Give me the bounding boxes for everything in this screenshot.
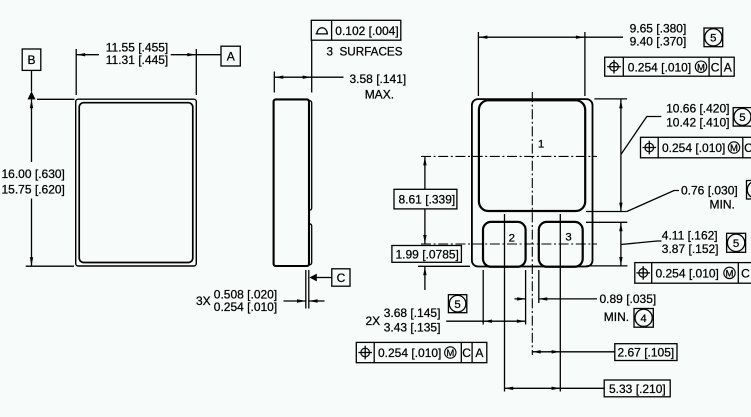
svg-text:5: 5 (710, 33, 716, 45)
svg-text:2.67 [.105]: 2.67 [.105] (618, 346, 675, 360)
svg-text:0.254 [.010]: 0.254 [.010] (656, 267, 719, 281)
svg-text:MIN.: MIN. (604, 310, 629, 324)
svg-text:5.33 [.210]: 5.33 [.210] (609, 382, 666, 396)
svg-text:MAX.: MAX. (365, 88, 394, 102)
svg-text:C: C (711, 60, 720, 74)
svg-text:2: 2 (509, 232, 515, 244)
svg-text:C: C (337, 271, 346, 285)
svg-text:3.68 [.145]: 3.68 [.145] (384, 306, 441, 320)
svg-text:M: M (730, 143, 738, 154)
svg-text:3X: 3X (196, 294, 211, 308)
svg-text:A: A (724, 60, 732, 74)
svg-text:16.00 [.630]: 16.00 [.630] (2, 167, 65, 181)
svg-text:3.43 [.135]: 3.43 [.135] (384, 320, 441, 334)
svg-text:4.11 [.162]: 4.11 [.162] (662, 229, 718, 243)
svg-text:M: M (726, 269, 734, 280)
svg-text:15.75 [.620]: 15.75 [.620] (2, 183, 65, 197)
svg-text:0.254 [.010]: 0.254 [.010] (662, 141, 725, 155)
svg-text:10.66 [.420]: 10.66 [.420] (666, 102, 729, 116)
svg-text:1.99 [.0785]: 1.99 [.0785] (396, 248, 459, 262)
svg-text:B: B (27, 53, 35, 67)
svg-text:5: 5 (739, 112, 745, 124)
svg-text:M: M (446, 348, 454, 359)
svg-text:0.89 [.035]: 0.89 [.035] (600, 292, 657, 306)
svg-text:2X: 2X (366, 314, 381, 328)
svg-text:3.87 [.152]: 3.87 [.152] (662, 242, 719, 256)
svg-text:M: M (697, 62, 705, 73)
svg-text:0.254 [.010]: 0.254 [.010] (378, 346, 441, 360)
svg-text:C: C (741, 267, 750, 281)
svg-text:5: 5 (733, 238, 739, 250)
svg-text:9.40 [.370]: 9.40 [.370] (630, 34, 687, 48)
svg-text:0.254 [.010]: 0.254 [.010] (628, 60, 691, 74)
svg-text:A: A (227, 50, 235, 64)
svg-text:1: 1 (538, 139, 544, 151)
svg-text:0.76 [.030]: 0.76 [.030] (681, 184, 738, 198)
svg-text:3 SURFACES: 3 SURFACES (327, 46, 403, 59)
svg-text:11.31 [.445]: 11.31 [.445] (106, 53, 169, 67)
svg-text:3: 3 (565, 231, 571, 243)
svg-text:A: A (475, 346, 483, 360)
svg-text:0.254 [.010]: 0.254 [.010] (214, 300, 277, 314)
svg-text:0.102 [.004]: 0.102 [.004] (335, 24, 398, 38)
svg-text:8.61 [.339]: 8.61 [.339] (399, 193, 456, 207)
svg-text:MIN.: MIN. (710, 198, 735, 212)
svg-text:10.42 [.410]: 10.42 [.410] (666, 116, 729, 130)
svg-text:3.58 [.141]: 3.58 [.141] (350, 72, 407, 86)
svg-text:4: 4 (640, 313, 646, 325)
svg-text:C: C (462, 346, 471, 360)
svg-text:5: 5 (454, 299, 460, 311)
svg-text:C: C (744, 141, 751, 155)
svg-text:9.65 [.380]: 9.65 [.380] (630, 21, 687, 35)
